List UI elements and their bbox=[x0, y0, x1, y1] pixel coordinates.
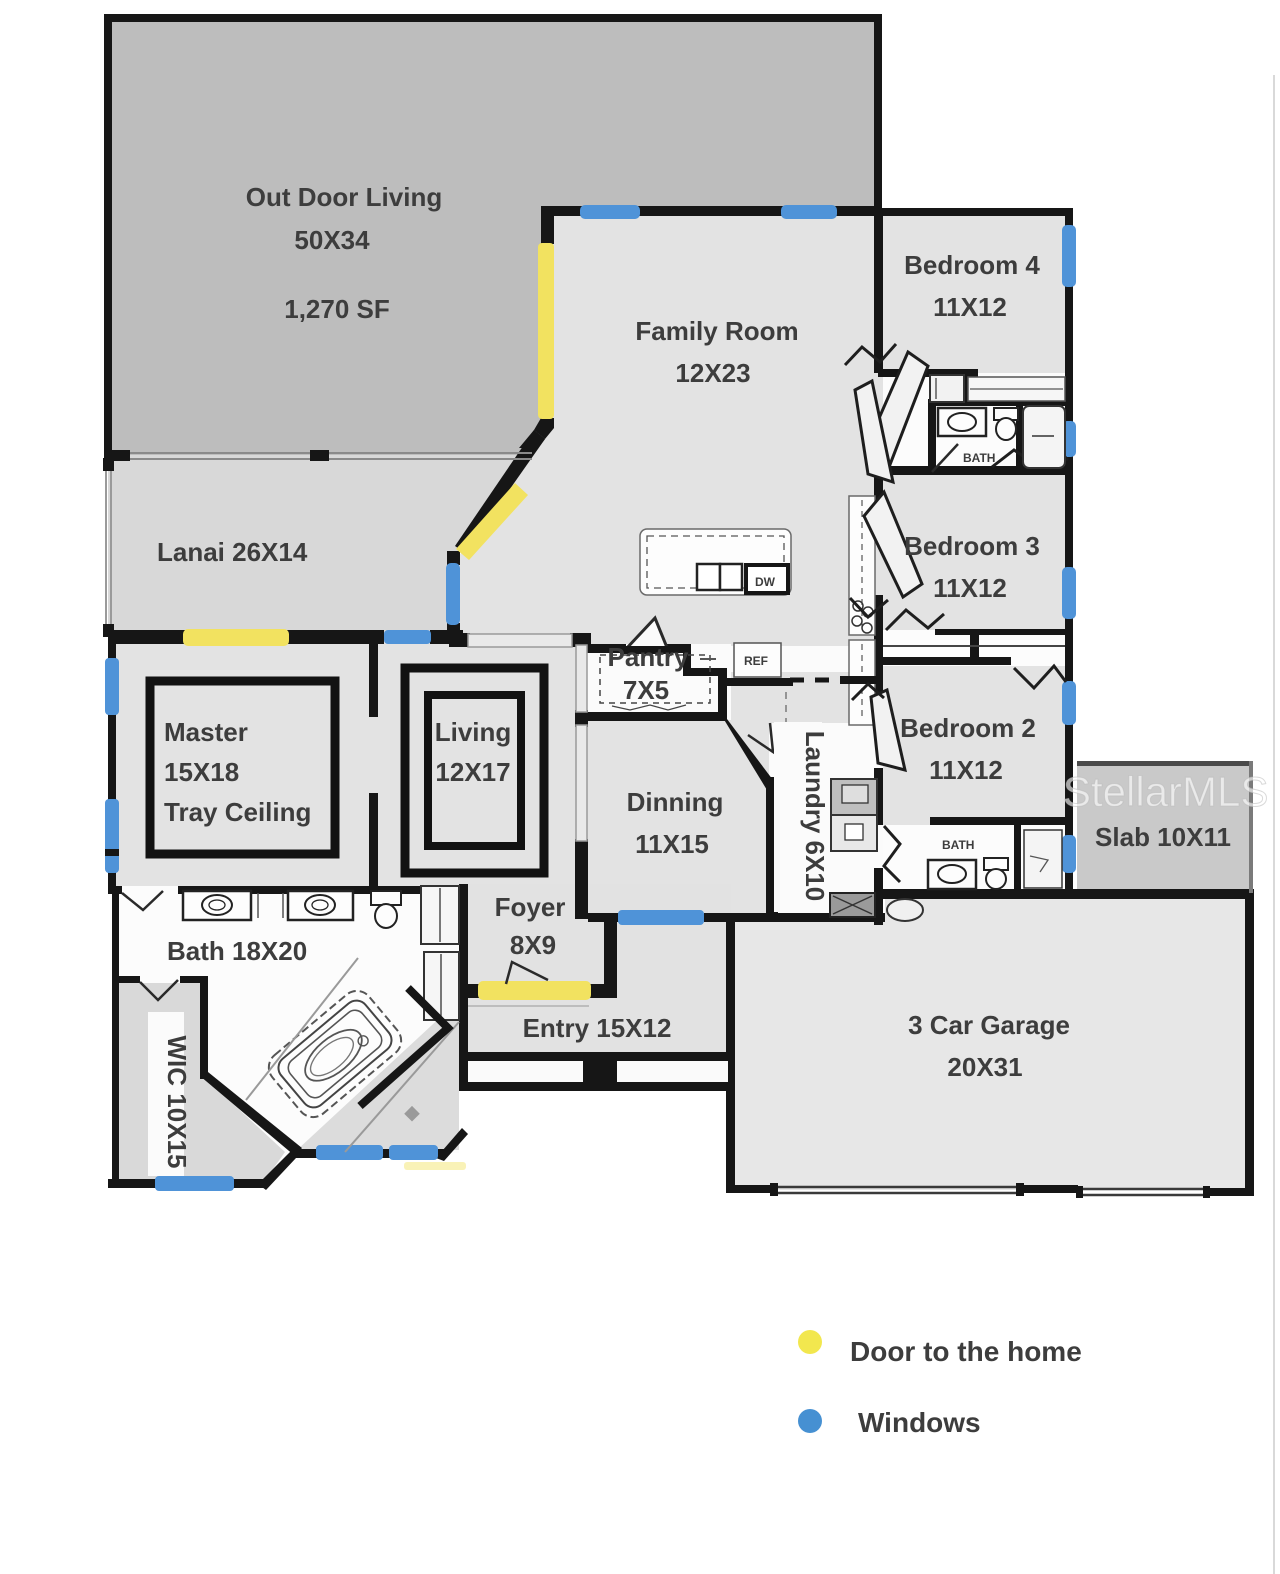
svg-text:20X31: 20X31 bbox=[947, 1052, 1022, 1082]
svg-text:12X17: 12X17 bbox=[435, 757, 510, 787]
svg-text:Slab 10X11: Slab 10X11 bbox=[1095, 822, 1231, 852]
svg-text:BATH: BATH bbox=[942, 838, 974, 852]
svg-text:Door to the home: Door to the home bbox=[850, 1336, 1082, 1367]
svg-text:Pantry: Pantry bbox=[608, 642, 689, 672]
svg-text:12X23: 12X23 bbox=[675, 358, 750, 388]
svg-text:Dinning: Dinning bbox=[627, 787, 724, 817]
svg-text:Bath 18X20: Bath 18X20 bbox=[167, 936, 307, 966]
svg-text:Bedroom 4: Bedroom 4 bbox=[904, 250, 1040, 280]
svg-text:Out Door Living: Out Door Living bbox=[246, 182, 442, 212]
svg-text:Bedroom 2: Bedroom 2 bbox=[900, 713, 1036, 743]
svg-text:Foyer: Foyer bbox=[495, 892, 566, 922]
svg-text:11X15: 11X15 bbox=[635, 829, 709, 859]
svg-text:REF: REF bbox=[744, 654, 768, 668]
svg-text:Windows: Windows bbox=[858, 1407, 981, 1438]
svg-text:Bedroom 3: Bedroom 3 bbox=[904, 531, 1040, 561]
svg-text:WIC 10X15: WIC 10X15 bbox=[162, 1036, 192, 1169]
svg-text:11X12: 11X12 bbox=[929, 755, 1003, 785]
svg-text:Master: Master bbox=[164, 717, 248, 747]
svg-text:Family Room: Family Room bbox=[635, 316, 798, 346]
svg-text:11X12: 11X12 bbox=[933, 573, 1007, 603]
svg-text:1,270 SF: 1,270 SF bbox=[284, 294, 390, 324]
svg-text:11X12: 11X12 bbox=[933, 292, 1007, 322]
svg-text:15X18: 15X18 bbox=[164, 757, 239, 787]
svg-text:BATH: BATH bbox=[963, 451, 995, 465]
svg-text:Living: Living bbox=[435, 717, 512, 747]
svg-text:Entry 15X12: Entry 15X12 bbox=[523, 1013, 672, 1043]
svg-text:DW: DW bbox=[755, 575, 776, 589]
svg-text:50X34: 50X34 bbox=[294, 225, 370, 255]
svg-text:8X9: 8X9 bbox=[510, 930, 556, 960]
svg-text:3 Car Garage: 3 Car Garage bbox=[908, 1010, 1070, 1040]
svg-text:Laundry 6X10: Laundry 6X10 bbox=[800, 731, 830, 902]
svg-text:7X5: 7X5 bbox=[623, 675, 669, 705]
svg-text:Tray Ceiling: Tray Ceiling bbox=[164, 797, 311, 827]
svg-text:StellarMLS: StellarMLS bbox=[1063, 768, 1268, 815]
svg-text:Lanai 26X14: Lanai 26X14 bbox=[157, 537, 308, 567]
